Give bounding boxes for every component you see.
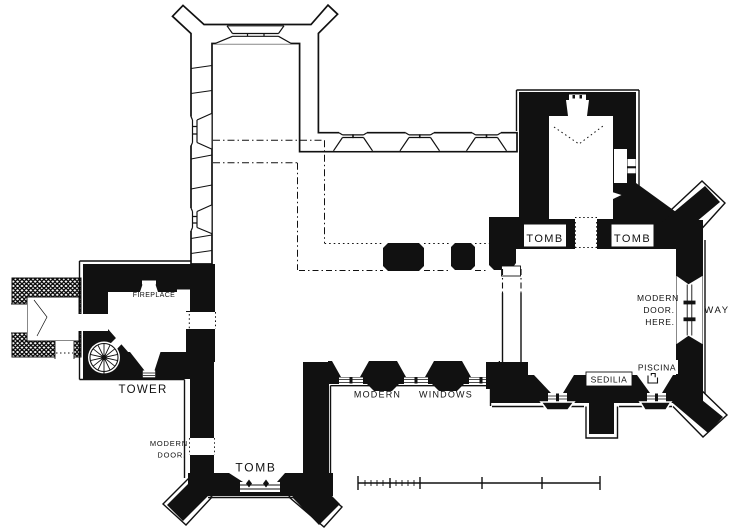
svg-text:TOMB: TOMB bbox=[614, 233, 651, 245]
svg-text:TOWER: TOWER bbox=[118, 384, 167, 396]
svg-text:MODERN: MODERN bbox=[637, 293, 679, 303]
svg-text:DOOR.: DOOR. bbox=[157, 451, 186, 460]
svg-text:PISCINA: PISCINA bbox=[638, 363, 676, 373]
svg-text:TOMB: TOMB bbox=[235, 461, 276, 475]
svg-text:MODERN: MODERN bbox=[354, 390, 401, 400]
svg-text:WINDOWS: WINDOWS bbox=[419, 390, 473, 400]
svg-text:TOMB: TOMB bbox=[526, 233, 563, 245]
svg-text:SEDILIA: SEDILIA bbox=[591, 375, 628, 385]
svg-text:DOOR.: DOOR. bbox=[643, 305, 674, 315]
svg-text:HERE.: HERE. bbox=[645, 317, 674, 327]
svg-text:FIREPLACE: FIREPLACE bbox=[133, 292, 176, 299]
svg-text:MODERN: MODERN bbox=[150, 439, 188, 448]
svg-text:WAY: WAY bbox=[704, 305, 729, 316]
